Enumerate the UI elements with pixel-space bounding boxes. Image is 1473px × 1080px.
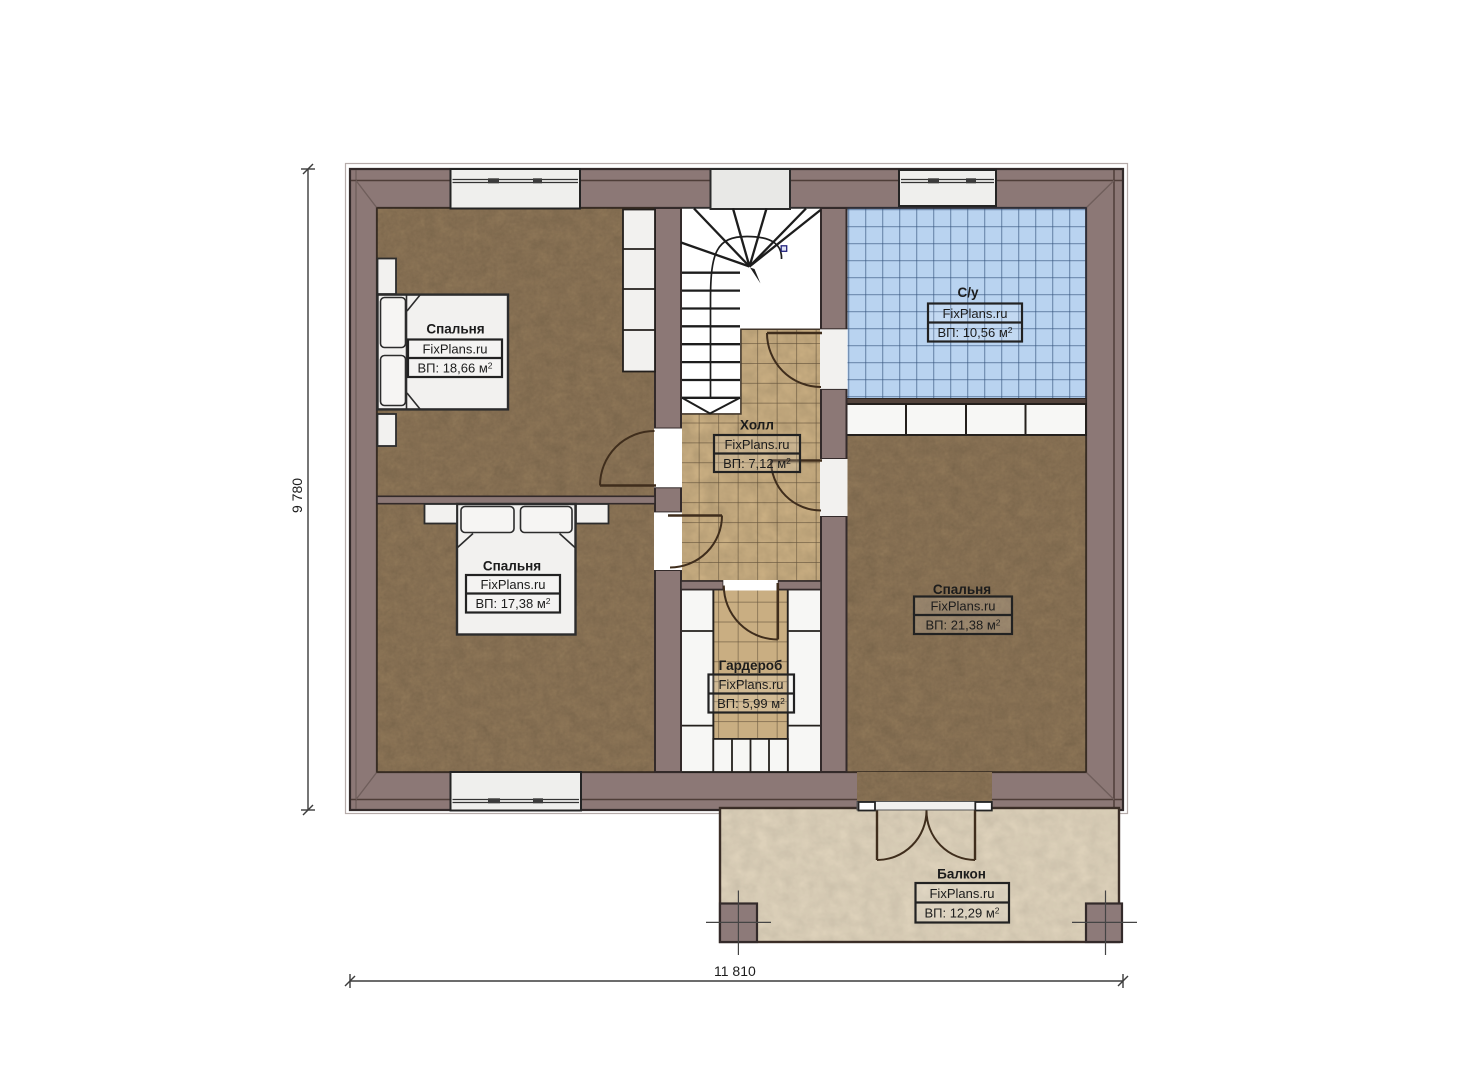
svg-text:FixPlans.ru: FixPlans.ru — [942, 306, 1007, 321]
svg-text:FixPlans.ru: FixPlans.ru — [718, 677, 783, 692]
svg-text:11 810: 11 810 — [714, 963, 756, 979]
svg-text:Спальня: Спальня — [483, 559, 541, 574]
svg-text:С/у: С/у — [957, 285, 979, 300]
svg-text:FixPlans.ru: FixPlans.ru — [724, 437, 789, 452]
svg-text:Балкон: Балкон — [937, 867, 986, 882]
svg-text:Спальня: Спальня — [426, 322, 484, 337]
svg-text:FixPlans.ru: FixPlans.ru — [929, 886, 994, 901]
svg-text:FixPlans.ru: FixPlans.ru — [422, 342, 487, 357]
svg-text:ВП: 17,38 м2: ВП: 17,38 м2 — [475, 596, 550, 611]
svg-text:ВП: 18,66 м2: ВП: 18,66 м2 — [417, 361, 492, 376]
svg-text:ВП: 10,56 м2: ВП: 10,56 м2 — [937, 325, 1012, 340]
svg-text:FixPlans.ru: FixPlans.ru — [480, 577, 545, 592]
svg-text:ВП: 5,99 м2: ВП: 5,99 м2 — [717, 696, 785, 711]
svg-text:FixPlans.ru: FixPlans.ru — [930, 599, 995, 614]
svg-text:Спальня: Спальня — [933, 582, 991, 597]
svg-text:ВП: 12,29 м2: ВП: 12,29 м2 — [924, 906, 999, 921]
svg-text:ВП: 21,38 м2: ВП: 21,38 м2 — [925, 618, 1000, 633]
svg-text:ВП: 7,12 м2: ВП: 7,12 м2 — [723, 456, 791, 471]
svg-text:9 780: 9 780 — [289, 478, 305, 513]
svg-text:Гардероб: Гардероб — [719, 658, 783, 673]
svg-text:Холл: Холл — [740, 418, 774, 433]
